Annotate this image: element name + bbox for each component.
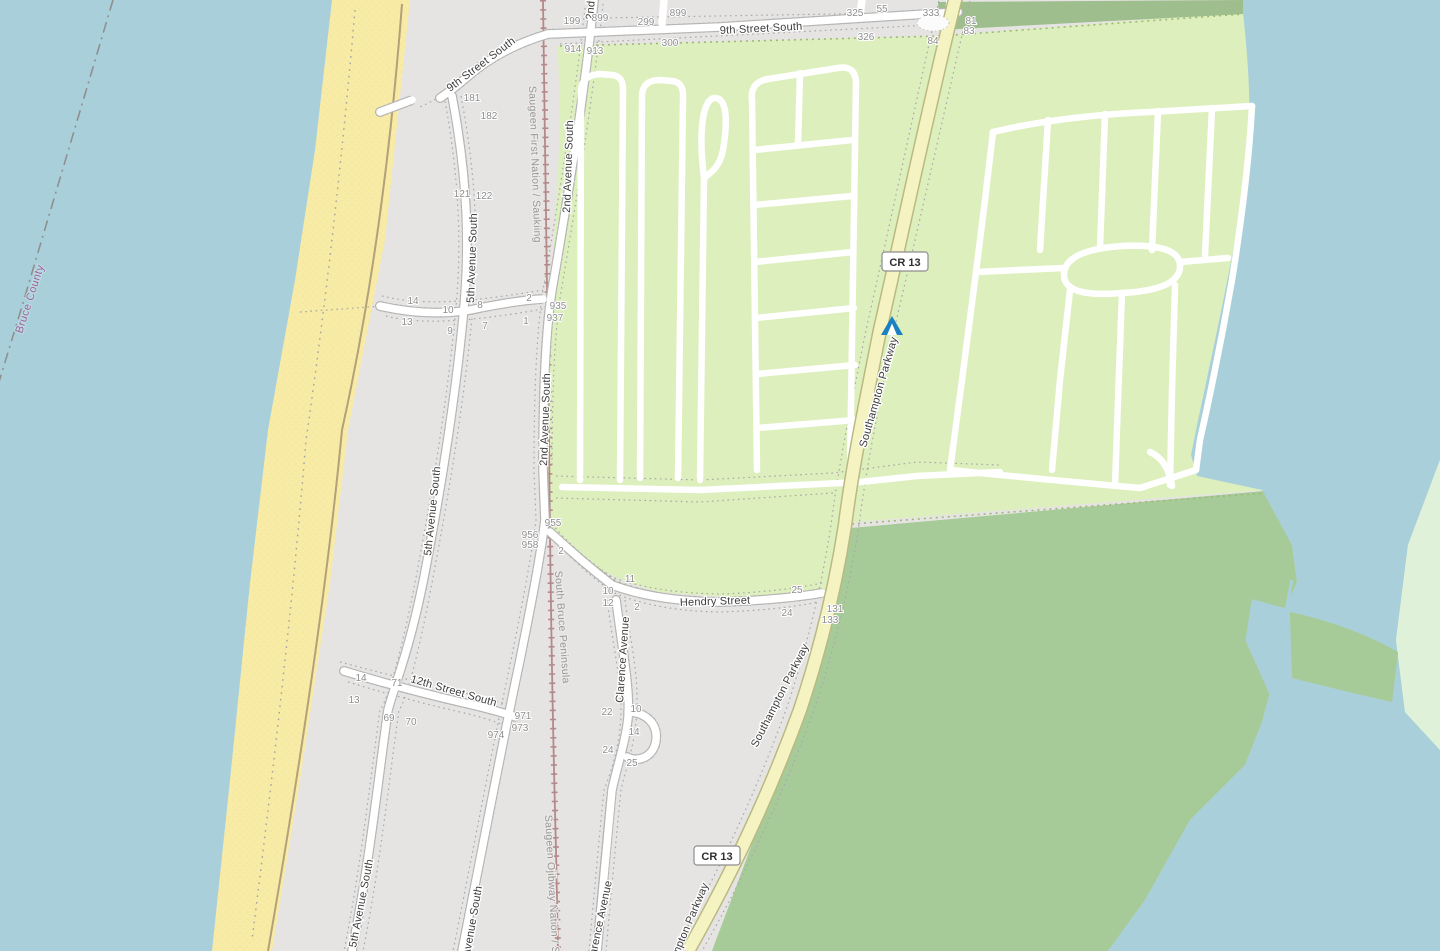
house-number: 25	[791, 585, 803, 596]
house-number: 955	[545, 518, 562, 529]
house-number: 83	[963, 26, 975, 37]
house-number: 14	[355, 673, 367, 684]
house-number: 958	[522, 540, 539, 551]
house-number: 333	[923, 8, 940, 19]
house-number: 84	[927, 36, 939, 47]
house-number: 914	[565, 44, 582, 55]
house-number: 10	[442, 305, 454, 316]
house-number: 131	[827, 604, 844, 615]
house-number: 25	[626, 758, 638, 769]
house-number: 182	[481, 111, 498, 122]
map-canvas[interactable]: 9th Street South9th Street South2nd Aven…	[0, 0, 1440, 951]
house-number: 2	[558, 546, 564, 557]
house-number: 122	[476, 191, 493, 202]
house-number: 13	[348, 695, 360, 706]
house-number: 55	[876, 4, 888, 15]
house-number: 935	[550, 301, 567, 312]
route-shield-cr13: CR 13	[694, 846, 740, 865]
house-number: 973	[512, 723, 529, 734]
house-number: 71	[391, 678, 403, 689]
house-number: 2	[526, 293, 532, 304]
house-number: 14	[628, 727, 640, 738]
house-number: 299	[638, 17, 655, 28]
route-shield-text: CR 13	[889, 257, 920, 269]
house-number: 181	[464, 93, 481, 104]
house-number: 12	[602, 598, 614, 609]
house-number: 971	[515, 711, 532, 722]
house-number: 937	[547, 313, 564, 324]
house-number: 2	[634, 602, 640, 613]
house-number: 300	[662, 38, 679, 49]
house-number: 24	[602, 745, 614, 756]
house-number: 10	[630, 704, 642, 715]
map-viewport[interactable]: 9th Street South9th Street South2nd Aven…	[0, 0, 1440, 951]
house-number: 70	[405, 717, 417, 728]
street-label-hendry-street: Hendry Street	[680, 595, 751, 609]
house-number: 325	[847, 8, 864, 19]
house-number: 326	[858, 32, 875, 43]
house-number: 899	[670, 8, 687, 19]
house-number: 69	[383, 713, 395, 724]
house-number: 24	[781, 608, 793, 619]
house-number: 133	[822, 615, 839, 626]
house-number: 10	[602, 586, 614, 597]
house-number: 199	[564, 16, 581, 27]
house-number: 13	[401, 317, 413, 328]
house-number: 974	[488, 730, 505, 741]
house-number: 913	[587, 46, 604, 57]
house-number: 9	[447, 326, 453, 337]
house-number: 899	[592, 13, 609, 24]
route-shield-text: CR 13	[701, 851, 732, 863]
house-number: 121	[454, 189, 471, 200]
house-number: 11	[625, 574, 636, 585]
house-number: 22	[601, 707, 613, 718]
house-number: 7	[482, 321, 488, 332]
house-number: 14	[407, 296, 419, 307]
house-number: 1	[523, 316, 529, 327]
house-number: 8	[477, 300, 483, 311]
route-shield-cr13: CR 13	[882, 252, 928, 271]
